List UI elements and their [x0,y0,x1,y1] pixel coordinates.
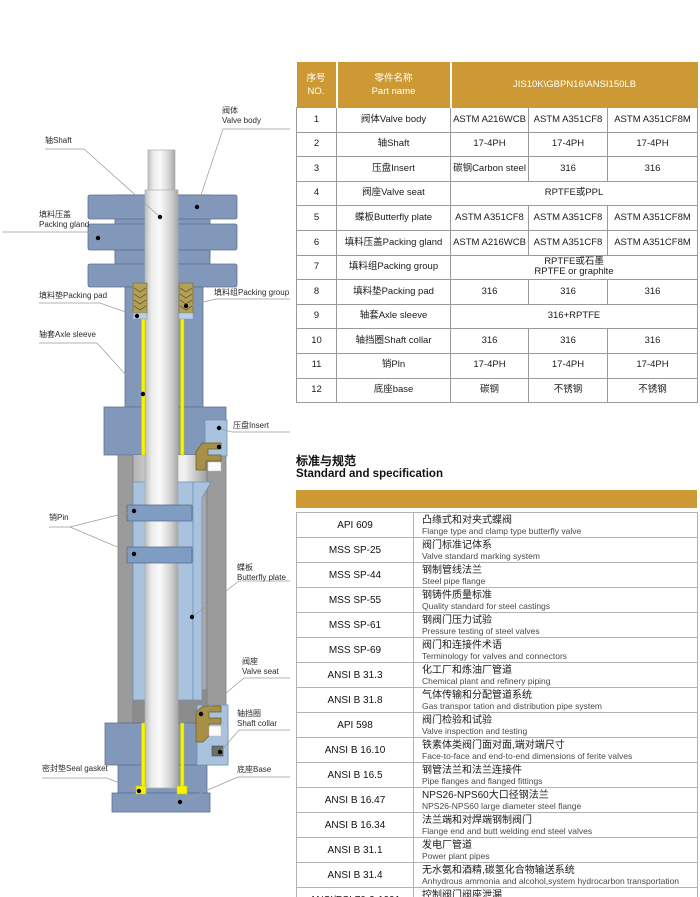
parts-table-row: 12底座base碳钢不锈钢不锈钢 [297,378,698,403]
part-name-cell: 轴挡圈Shaft collar [337,329,451,354]
standard-code-cell: MSS SP-44 [297,563,414,588]
standard-desc-en: Valve inspection and testing [422,726,695,736]
material-cell: 316 [529,280,608,305]
standard-desc-cell: 阀门标准记体系Valve standard marking system [414,538,698,563]
part-no-cell: 12 [297,378,337,403]
label-packing-pad: 填料垫Packing pad [39,291,107,301]
material-cell: ASTM A216WCB [451,230,529,255]
standard-desc-zh: 阀门标准记体系 [422,540,695,551]
standard-desc-cell: 无水氨和酒精,碳氢化合物输送系统Anhydrous ammonia and al… [414,863,698,888]
label-base: 底座Base [237,765,271,775]
standards-table-row: API 609凸缘式和对夹式蝶阀Flange type and clamp ty… [297,513,698,538]
parts-table-row: 2轴Shaft17-4PH17-4PH17-4PH [297,132,698,157]
standards-table-row: ANSI B 31.4无水氨和酒精,碳氢化合物输送系统Anhydrous amm… [297,863,698,888]
part-no-cell: 7 [297,255,337,280]
standard-desc-zh: 铁素体类阀门面对面,端对端尺寸 [422,740,695,751]
standards-table-row: ANSI B 31.8气体传输和分配管道系统Gas transpor tatio… [297,688,698,713]
standards-table-row: MSS SP-44钢制管线法兰Steel pipe flange [297,563,698,588]
standard-code-cell: API 598 [297,713,414,738]
standards-table-row: MSS SP-69阀门和连接件术语Terminology for valves … [297,638,698,663]
standards-table-row: MSS SP-55钢铸件质量标准Quality standard for ste… [297,588,698,613]
part-name-cell: 底座base [337,378,451,403]
label-seal-gasket: 密封垫Seal gasket [42,764,108,774]
part-name-cell: 销Pln [337,353,451,378]
material-cell: 17-4PH [608,353,698,378]
material-cell: 316 [608,329,698,354]
standard-code-cell: ANSI B 16.47 [297,788,414,813]
material-cell: 不锈钢 [529,378,608,403]
standard-desc-zh: 凸缘式和对夹式蝶阀 [422,515,695,526]
parts-table-header-row: 序号 NO. 零件名称 Part name JIS10K\GBPN16\ANSI… [297,62,698,108]
standard-desc-zh: NPS26-NPS60大口径钢法兰 [422,790,695,801]
material-cell: ASTM A351CF8M [608,206,698,231]
standard-desc-zh: 无水氨和酒精,碳氢化合物输送系统 [422,865,695,876]
label-packing-group: 填料组Packing group [214,288,289,298]
material-cell: 316 [608,157,698,182]
standard-desc-cell: 发电厂管道Power plant pipes [414,838,698,863]
part-name-cell: 填料组Packing group [337,255,451,280]
standard-desc-cell: NPS26-NPS60大口径钢法兰NPS26-NPS60 large diame… [414,788,698,813]
standard-code-cell: MSS SP-25 [297,538,414,563]
standards-table: API 609凸缘式和对夹式蝶阀Flange type and clamp ty… [296,512,698,897]
material-cell-span: RPTFE或PPL [451,181,698,206]
part-no-cell: 9 [297,304,337,329]
part-no-cell: 8 [297,280,337,305]
standards-table-row: ANSI B 16.34法兰端和对焊端钢制阀门Flange end and bu… [297,813,698,838]
standards-table-container: API 609凸缘式和对夹式蝶阀Flange type and clamp ty… [296,512,697,897]
standard-desc-cell: 钢制管线法兰Steel pipe flange [414,563,698,588]
standard-desc-cell: 阀门和连接件术语Terminology for valves and conne… [414,638,698,663]
material-cell: 316 [451,329,529,354]
standard-desc-en: Face-to-face and end-to-end dimensions o… [422,751,695,761]
standard-code-cell: ANSI/FCI 70-2-1991 [297,888,414,897]
part-name-cell: 轴Shaft [337,132,451,157]
material-cell: ASTM A351CF8 [451,206,529,231]
standards-table-row: MSS SP-61钢阀门压力试验Pressure testing of stee… [297,613,698,638]
material-cell: 17-4PH [529,353,608,378]
standard-desc-zh: 阀门检验和试验 [422,715,695,726]
part-no-cell: 2 [297,132,337,157]
part-name-cell: 填料压盖Packing gland [337,230,451,255]
standard-code-cell: MSS SP-55 [297,588,414,613]
header-no: 序号 NO. [297,62,337,108]
material-cell: 17-4PH [529,132,608,157]
parts-table-row: 6填料压盖Packing glandASTM A216WCBASTM A351C… [297,230,698,255]
material-cell: 碳钢Carbon steel [451,157,529,182]
standards-title: 标准与规范 Standard and specification [296,454,443,481]
label-packing-gland: 填料压盖 Packing gland [39,210,89,229]
parts-table-row: 8填料垫Packing pad316316316 [297,280,698,305]
label-butterfly-plate: 蝶板 Butterfly plate [237,563,286,582]
parts-table-container: 序号 NO. 零件名称 Part name JIS10K\GBPN16\ANSI… [296,62,697,403]
standard-desc-cell: 阀门检验和试验Valve inspection and testing [414,713,698,738]
part-no-cell: 11 [297,353,337,378]
material-cell: 不锈钢 [608,378,698,403]
standard-desc-en: Gas transpor tation and distribution pip… [422,701,695,711]
label-insert: 压盘Insert [233,421,269,431]
standards-table-row: ANSI B 31.1发电厂管道Power plant pipes [297,838,698,863]
part-name-cell: 压盘Insert [337,157,451,182]
standard-desc-en: Steel pipe flange [422,576,695,586]
label-pin: 销Pin [49,513,69,523]
standard-desc-cell: 法兰端和对焊端钢制阀门Flange end and butt welding e… [414,813,698,838]
part-no-cell: 1 [297,108,337,133]
standard-desc-cell: 钢管法兰和法兰连接件Pipe flanges and flanged fitti… [414,763,698,788]
shaft-shape [145,150,178,788]
standard-desc-cell: 铁素体类阀门面对面,端对端尺寸Face-to-face and end-to-e… [414,738,698,763]
part-name-cell: 阀座Valve seat [337,181,451,206]
material-cell: 316 [529,157,608,182]
material-cell: ASTM A351CF8M [608,230,698,255]
label-shaft: 轴Shaft [45,136,72,146]
part-no-cell: 6 [297,230,337,255]
catalog-page: 阀体 Valve body 轴Shaft 填料压盖 Packing gland … [0,0,700,897]
standard-code-cell: ANSI B 16.5 [297,763,414,788]
standards-table-row: MSS SP-25阀门标准记体系Valve standard marking s… [297,538,698,563]
header-part-name: 零件名称 Part name [337,62,451,108]
material-cell: 17-4PH [608,132,698,157]
parts-table-row: 10轴挡圈Shaft collar316316316 [297,329,698,354]
standards-table-row: ANSI B 16.5钢管法兰和法兰连接件Pipe flanges and fl… [297,763,698,788]
standard-code-cell: MSS SP-69 [297,638,414,663]
valve-cross-section-diagram [0,0,295,897]
part-name-cell: 蝶板Butterfly plate [337,206,451,231]
material-cell: ASTM A351CF8M [608,108,698,133]
standard-desc-cell: 钢阀门压力试验Pressure testing of steel valves [414,613,698,638]
standard-desc-en: Pipe flanges and flanged fittings [422,776,695,786]
standard-code-cell: ANSI B 31.4 [297,863,414,888]
standard-desc-zh: 法兰端和对焊端钢制阀门 [422,815,695,826]
part-no-cell: 10 [297,329,337,354]
standard-desc-zh: 气体传输和分配管道系统 [422,690,695,701]
standard-desc-en: Chemical plant and refinery piping [422,676,695,686]
standard-desc-en: Terminology for valves and connectors [422,651,695,661]
standard-desc-en: Quality standard for steel castings [422,601,695,611]
label-valve-seat: 阀座 Valve seat [242,657,279,676]
standards-table-row: API 598阀门检验和试验Valve inspection and testi… [297,713,698,738]
material-cell-span: 316+RPTFE [451,304,698,329]
standard-code-cell: API 609 [297,513,414,538]
standard-desc-en: NPS26-NPS60 large diameter steel flange [422,801,695,811]
part-no-cell: 5 [297,206,337,231]
standard-desc-zh: 阀门和连接件术语 [422,640,695,651]
standard-desc-zh: 钢阀门压力试验 [422,615,695,626]
standard-desc-en: Flange type and clamp type butterfly val… [422,526,695,536]
standard-desc-en: Power plant pipes [422,851,695,861]
material-cell: 17-4PH [451,132,529,157]
part-name-cell: 填料垫Packing pad [337,280,451,305]
material-cell: ASTM A351CF8 [529,230,608,255]
standards-title-zh: 标准与规范 [296,454,443,468]
label-axle-sleeve: 轴套Axle sleeve [39,330,96,340]
part-no-cell: 3 [297,157,337,182]
standards-title-en: Standard and specification [296,468,443,481]
standard-desc-cell: 凸缘式和对夹式蝶阀Flange type and clamp type butt… [414,513,698,538]
header-materials: JIS10K\GBPN16\ANSI150LB [451,62,698,108]
part-name-cell: 轴套Axle sleeve [337,304,451,329]
standard-desc-cell: 控制阀门阀座泄漏Control valve seat leakage [414,888,698,897]
standards-table-row: ANSI B 16.10铁素体类阀门面对面,端对端尺寸Face-to-face … [297,738,698,763]
standard-desc-en: Pressure testing of steel valves [422,626,695,636]
standards-header-bar [296,490,697,508]
standard-desc-en: Anhydrous ammonia and alcohol,system hyd… [422,876,695,886]
parts-table-row: 3压盘Insert碳钢Carbon steel316316 [297,157,698,182]
standard-code-cell: MSS SP-61 [297,613,414,638]
material-cell: 碳钢 [451,378,529,403]
parts-table-row: 1阀体Valve bodyASTM A216WCBASTM A351CF8AST… [297,108,698,133]
parts-table-body: 1阀体Valve bodyASTM A216WCBASTM A351CF8AST… [297,108,698,403]
material-cell: 316 [451,280,529,305]
parts-table-row: 11销Pln17-4PH17-4PH17-4PH [297,353,698,378]
standard-desc-zh: 钢制管线法兰 [422,565,695,576]
standard-desc-en: Valve standard marking system [422,551,695,561]
standard-desc-zh: 化工厂和炼油厂管道 [422,665,695,676]
standards-table-row: ANSI/FCI 70-2-1991控制阀门阀座泄漏Control valve … [297,888,698,897]
seal-gasket-shape [177,786,187,794]
standard-desc-zh: 钢管法兰和法兰连接件 [422,765,695,776]
standard-desc-cell: 气体传输和分配管道系统Gas transpor tation and distr… [414,688,698,713]
parts-table-row: 5蝶板Butterfly plateASTM A351CF8ASTM A351C… [297,206,698,231]
standard-desc-zh: 控制阀门阀座泄漏 [422,890,695,897]
material-cell: ASTM A351CF8 [529,108,608,133]
parts-table-row: 4阀座Valve seatRPTFE或PPL [297,181,698,206]
standard-desc-en: Flange end and butt welding end steel va… [422,826,695,836]
packing-pad-shape [179,313,193,319]
parts-table-row: 9轴套Axle sleeve316+RPTFE [297,304,698,329]
parts-table: 序号 NO. 零件名称 Part name JIS10K\GBPN16\ANSI… [296,62,698,403]
material-cell-span: RPTFE或石墨 RPTFE or graphlte [451,255,698,280]
material-cell: 316 [608,280,698,305]
standard-desc-cell: 化工厂和炼油厂管道Chemical plant and refinery pip… [414,663,698,688]
standard-desc-zh: 钢铸件质量标准 [422,590,695,601]
material-cell: ASTM A216WCB [451,108,529,133]
material-cell: ASTM A351CF8 [529,206,608,231]
standard-code-cell: ANSI B 16.10 [297,738,414,763]
label-shaft-collar: 轴挡圈 Shaft collar [237,709,277,728]
label-valve-body: 阀体 Valve body [222,106,261,125]
standard-desc-cell: 钢铸件质量标准Quality standard for steel castin… [414,588,698,613]
part-no-cell: 4 [297,181,337,206]
standards-table-row: ANSI B 16.47NPS26-NPS60大口径钢法兰NPS26-NPS60… [297,788,698,813]
standards-table-row: ANSI B 31.3化工厂和炼油厂管道Chemical plant and r… [297,663,698,688]
standard-code-cell: ANSI B 16.34 [297,813,414,838]
standard-desc-zh: 发电厂管道 [422,840,695,851]
standard-code-cell: ANSI B 31.8 [297,688,414,713]
material-cell: 316 [529,329,608,354]
parts-table-row: 7填料组Packing groupRPTFE或石墨 RPTFE or graph… [297,255,698,280]
material-cell: 17-4PH [451,353,529,378]
standard-code-cell: ANSI B 31.3 [297,663,414,688]
standard-code-cell: ANSI B 31.1 [297,838,414,863]
standards-table-body: API 609凸缘式和对夹式蝶阀Flange type and clamp ty… [297,513,698,897]
part-name-cell: 阀体Valve body [337,108,451,133]
